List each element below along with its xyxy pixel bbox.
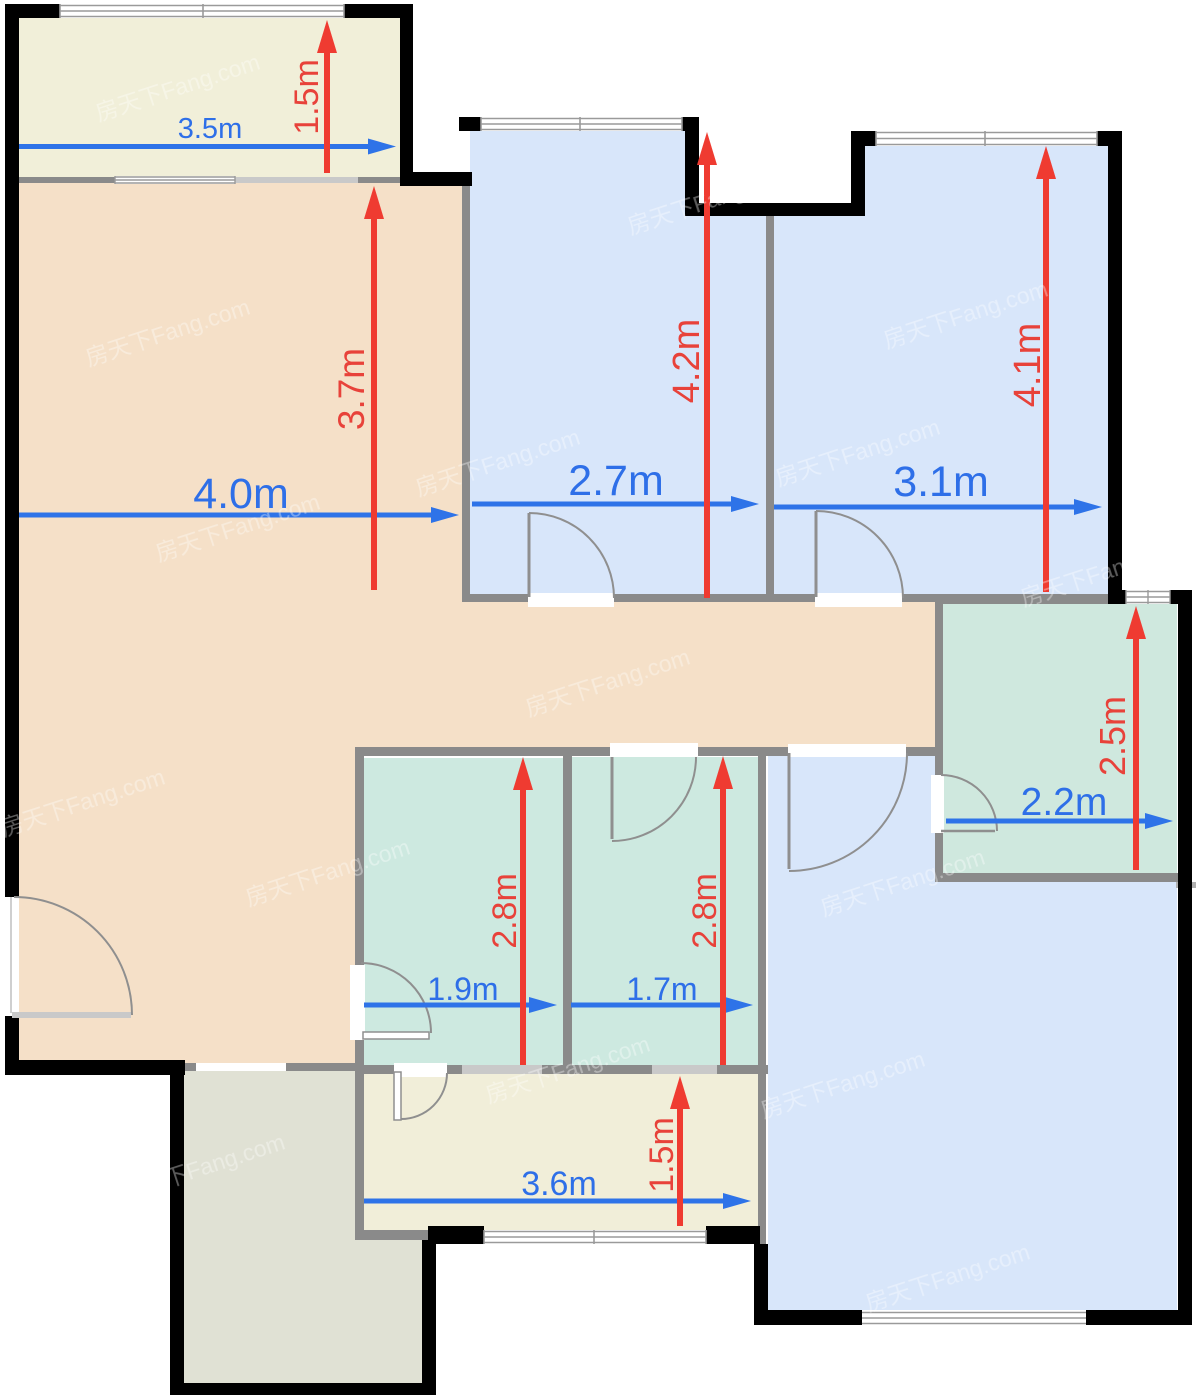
svg-text:2.5m: 2.5m bbox=[1092, 696, 1133, 776]
svg-text:1.5m: 1.5m bbox=[288, 59, 326, 135]
svg-text:2.8m: 2.8m bbox=[486, 873, 524, 949]
svg-text:2.2m: 2.2m bbox=[1021, 781, 1108, 824]
svg-text:1.7m: 1.7m bbox=[626, 971, 697, 1007]
svg-text:3.6m: 3.6m bbox=[521, 1165, 597, 1203]
svg-text:1.5m: 1.5m bbox=[643, 1117, 681, 1193]
svg-text:4.2m: 4.2m bbox=[666, 319, 708, 403]
svg-text:2.7m: 2.7m bbox=[568, 457, 664, 505]
svg-text:4.1m: 4.1m bbox=[1007, 323, 1049, 407]
svg-text:3.7m: 3.7m bbox=[331, 348, 372, 430]
svg-text:3.5m: 3.5m bbox=[178, 113, 242, 145]
svg-text:1.9m: 1.9m bbox=[427, 971, 498, 1007]
svg-text:3.1m: 3.1m bbox=[893, 458, 989, 506]
svg-text:2.8m: 2.8m bbox=[686, 873, 724, 949]
